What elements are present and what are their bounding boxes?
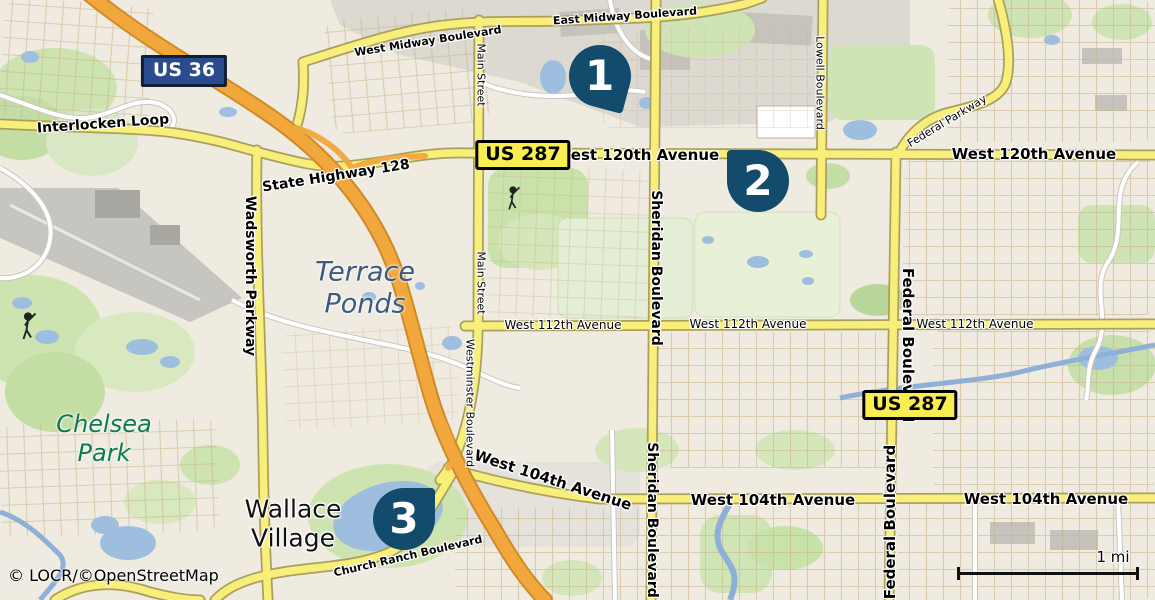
road-label-w104-2: West 104th Avenue [964, 490, 1128, 508]
map-canvas[interactable]: Interlocken Loop State Highway 128 West … [0, 0, 1155, 600]
road-label-w120-2: West 120th Avenue [952, 145, 1116, 163]
scale-bar-line [960, 572, 1136, 575]
marker-3-number: 3 [389, 498, 418, 540]
road-label-w112-1: West 112th Avenue [505, 318, 622, 332]
place-label-chelsea-park-line2: Park [78, 439, 131, 467]
scale-label: 1 mi [1096, 548, 1129, 566]
road-label-w112-2: West 112th Avenue [690, 317, 807, 331]
place-label-wallace-village-line1: Wallace [245, 495, 342, 524]
road-label-sheridan-top: Sheridan Boulevard [648, 190, 664, 346]
map-marker-2[interactable]: 2 [727, 150, 789, 212]
us287-shield-1: US 287 [475, 140, 570, 170]
place-label-terrace-ponds-line2: Ponds [324, 289, 405, 320]
place-label-wallace-village-line2: Village [251, 524, 335, 553]
us36-shield: US 36 [141, 55, 227, 87]
road-label-sheridan-bottom: Sheridan Boulevard [644, 442, 660, 598]
road-label-federal-blvd-bottom: Federal Boulevard [881, 445, 899, 599]
road-label-wadsworth: Wadsworth Parkway [242, 196, 258, 356]
map-attribution: © LOCR/©OpenStreetMap [8, 566, 219, 585]
road-label-w104-1: West 104th Avenue [691, 491, 855, 509]
place-label-terrace-ponds-line1: Terrace [315, 257, 415, 288]
map-marker-3[interactable]: 3 [373, 488, 435, 550]
road-label-lowell: Lowell Boulevard [814, 36, 827, 130]
road-label-main-street-mid: Main Street [475, 251, 488, 314]
place-label-chelsea-park-line1: Chelsea [56, 410, 151, 438]
marker-2-number: 2 [743, 160, 772, 202]
us287-shield-2: US 287 [862, 390, 957, 420]
road-label-westminster: Westminster Boulevard [464, 339, 477, 467]
scale-bar [957, 567, 1139, 580]
road-label-w120-1: West 120th Avenue [555, 146, 719, 164]
road-label-w112-3: West 112th Avenue [917, 317, 1034, 331]
marker-1-number: 1 [585, 55, 614, 97]
road-label-main-street-top: Main Street [475, 43, 488, 106]
